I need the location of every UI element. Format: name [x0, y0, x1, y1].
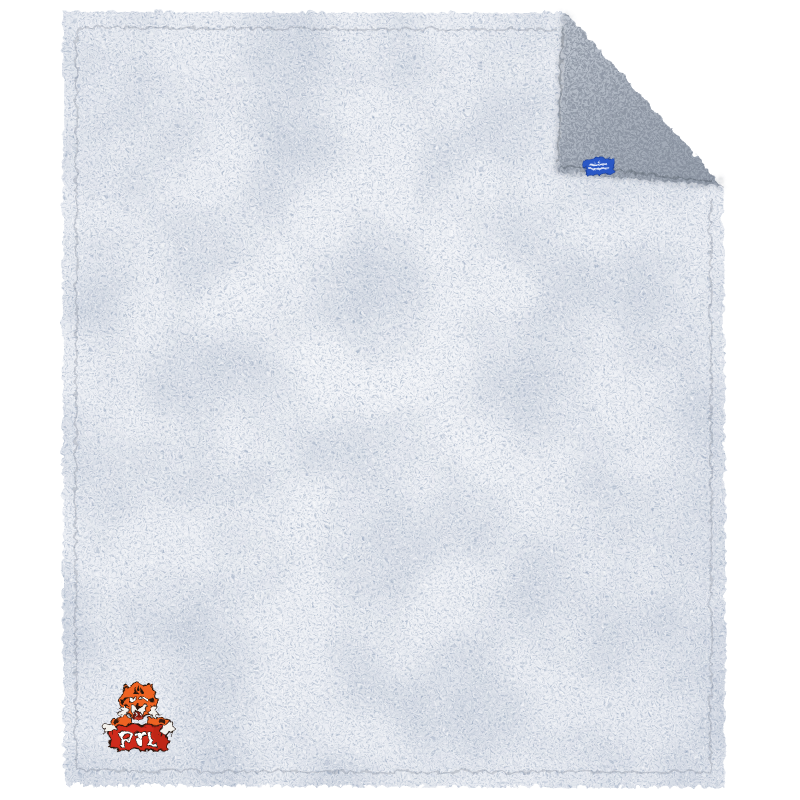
product-photo: PTL — [0, 0, 800, 800]
brand-tag — [582, 156, 612, 173]
tiger-left-pupil — [132, 697, 134, 699]
logo-text: PTL — [118, 728, 159, 750]
blanket: PTL — [61, 9, 724, 786]
brand-tag-body — [582, 156, 612, 173]
blanket-illustration: PTL — [0, 0, 800, 800]
fold-flap-reverse-side — [557, 11, 721, 184]
tiger-right-pupil — [141, 697, 143, 699]
